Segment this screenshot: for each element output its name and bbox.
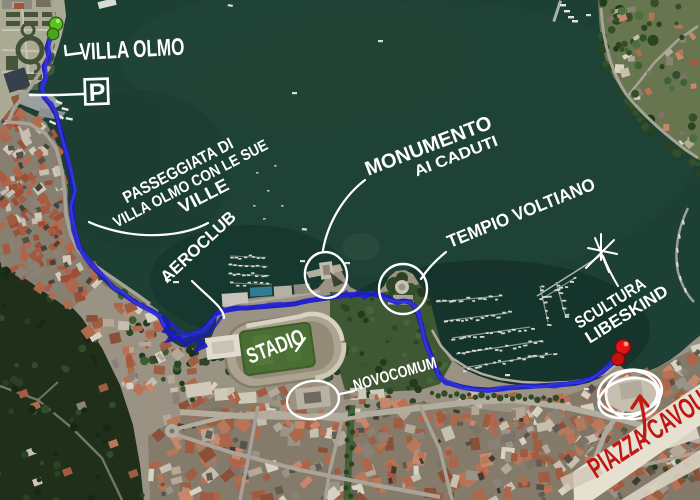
svg-text:VILLA OLMO: VILLA OLMO	[79, 34, 185, 66]
svg-text:P: P	[88, 78, 106, 107]
